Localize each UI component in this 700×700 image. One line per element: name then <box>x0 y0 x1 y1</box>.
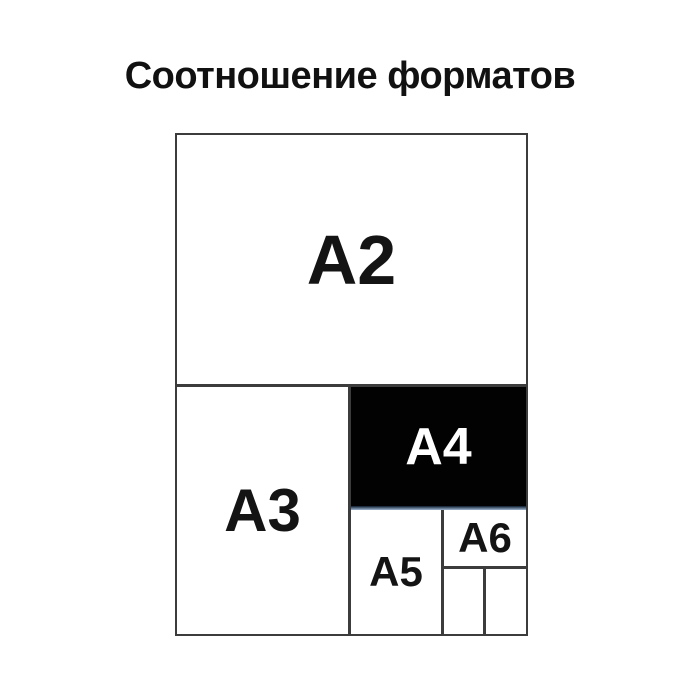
label-a6: A6 <box>458 517 512 559</box>
page-title: Соотношение форматов <box>0 56 700 98</box>
cell-a5: A5 <box>351 510 444 634</box>
cell-a4: A4 <box>351 387 526 506</box>
label-a3: A3 <box>224 481 301 541</box>
cell-a6: A6 <box>444 510 526 569</box>
sub-section: A5 A6 <box>351 510 526 634</box>
bottom-section: A3 A4 A5 A6 <box>177 387 526 634</box>
label-a4: A4 <box>405 421 471 473</box>
small-cell-right <box>486 569 526 634</box>
format-diagram: A2 A3 A4 A5 <box>175 133 528 636</box>
page: Соотношение форматов A2 A3 A4 A5 <box>0 0 700 700</box>
cell-a2: A2 <box>177 135 526 387</box>
small-cell-left <box>444 569 486 634</box>
label-a5: A5 <box>369 551 423 593</box>
label-a2: A2 <box>307 225 396 295</box>
small-cells-row <box>444 569 526 634</box>
right-column: A4 A5 A6 <box>351 387 526 634</box>
cell-a3: A3 <box>177 387 351 634</box>
sub-column: A6 <box>444 510 526 634</box>
